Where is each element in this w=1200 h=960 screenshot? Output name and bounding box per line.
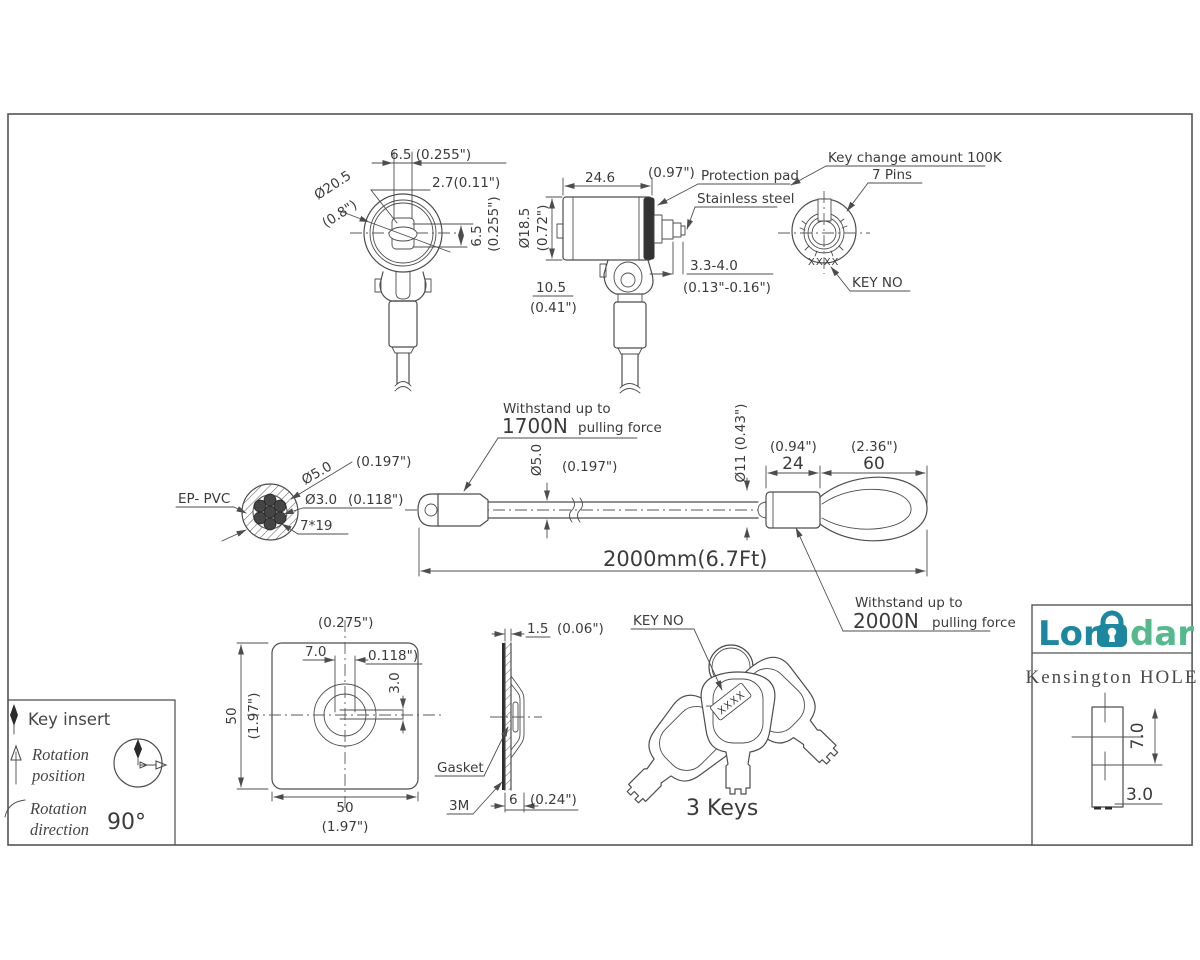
protection-pad-part bbox=[644, 198, 654, 259]
dim-front-65-top: 6.5 (0.255") bbox=[390, 147, 471, 163]
dim-plate-0118: 0.118") bbox=[368, 648, 418, 664]
dim-plate-left-50: 50 bbox=[224, 707, 240, 724]
dim-side-334: 3.3-4.0 bbox=[690, 258, 738, 274]
dim-side-105: 10.5 bbox=[536, 280, 566, 296]
dim-cable-dia50: Ø5.0 bbox=[529, 444, 545, 476]
dim-2000mm: 2000mm(6.7Ft) bbox=[603, 547, 767, 571]
dim-front-65-right-in: (0.255") bbox=[486, 196, 502, 251]
label-7x19: 7*19 bbox=[300, 518, 333, 534]
dim-cross-dia30-in: (0.118") bbox=[348, 492, 403, 508]
dim-plate-70: 7.0 bbox=[305, 644, 326, 660]
note-2000-line2: pulling force bbox=[932, 615, 1016, 631]
dim-plate-bottom-50: 50 bbox=[336, 800, 353, 816]
legend-direction: direction bbox=[30, 820, 89, 839]
label-gasket: Gasket bbox=[437, 760, 484, 776]
legend-rotation-1: Rotation bbox=[31, 745, 89, 764]
label-key-no-keys: KEY NO bbox=[633, 613, 684, 629]
drawing-canvas: 6.5 (0.255") 2.7(0.11") Ø20.5 (0.8") 6.5… bbox=[0, 0, 1200, 960]
legend-key-insert: Key insert bbox=[28, 710, 111, 729]
dim-60-in: (2.36") bbox=[851, 439, 898, 455]
technical-drawing-sheet: 6.5 (0.255") 2.7(0.11") Ø20.5 (0.8") 6.5… bbox=[0, 0, 1200, 960]
dim-60: 60 bbox=[863, 454, 885, 474]
dim-plate-30: 3.0 bbox=[387, 672, 403, 693]
dim-front-65-right: 6.5 bbox=[469, 225, 485, 246]
legend-position: position bbox=[31, 766, 85, 785]
dim-side-dia185-in: (0.72") bbox=[535, 205, 551, 252]
dim-hole-30: 3.0 bbox=[1126, 785, 1153, 805]
dim-hole-70: 7.0 bbox=[1128, 722, 1148, 749]
dim-cable-dia50-in: (0.197") bbox=[562, 459, 617, 475]
dim-side-105-in: (0.41") bbox=[530, 300, 577, 316]
dim-side-246: 24.6 bbox=[585, 170, 615, 186]
label-protection-pad: Protection pad bbox=[701, 168, 799, 184]
key-face-code: XXXX bbox=[808, 257, 839, 268]
note-1700-line2: pulling force bbox=[578, 420, 662, 436]
dim-cross-dia50-in: (0.197") bbox=[356, 454, 411, 470]
dim-plate-left-in: (1.97") bbox=[246, 693, 262, 740]
label-key-no-face: KEY NO bbox=[852, 275, 903, 291]
logo-text-lor: Lor bbox=[1038, 614, 1100, 654]
dim-front-27: 2.7(0.11") bbox=[432, 175, 500, 191]
legend-rotation-2: Rotation bbox=[29, 799, 87, 818]
label-ep-pvc: EP- PVC bbox=[178, 491, 230, 507]
label-stainless-steel: Stainless steel bbox=[697, 191, 795, 207]
note-1700-value: 1700N bbox=[502, 414, 568, 438]
dim-plate-bottom-in: (1.97") bbox=[322, 819, 369, 835]
label-key-change: Key change amount 100K bbox=[828, 150, 1003, 166]
dim-gasket-15-in: (0.06") bbox=[557, 621, 604, 637]
dim-gasket-15: 1.5 bbox=[527, 621, 548, 637]
dim-24: 24 bbox=[782, 454, 804, 474]
dim-cross-dia30: Ø3.0 bbox=[305, 492, 337, 508]
brand-box: Lor dar Kensington HOLE 7.0 3 bbox=[1025, 605, 1198, 845]
dim-side-334-in: (0.13"-0.16") bbox=[683, 280, 771, 296]
legend-angle: 90° bbox=[107, 810, 146, 835]
label-7-pins: 7 Pins bbox=[872, 167, 912, 183]
dim-24-in: (0.94") bbox=[770, 439, 817, 455]
dim-side-246-in: (0.97") bbox=[648, 165, 695, 181]
dim-gasket-6: 6 bbox=[509, 792, 518, 808]
label-kensington-hole: Kensington HOLE bbox=[1025, 667, 1198, 688]
logo-text-dar: dar bbox=[1130, 614, 1194, 654]
sheet-border bbox=[8, 114, 1192, 845]
dim-cable-dia11: Ø11 (0.43") bbox=[733, 404, 749, 483]
label-3-keys: 3 Keys bbox=[686, 796, 758, 821]
label-3m: 3M bbox=[449, 798, 469, 814]
dim-plate-top-in: (0.275") bbox=[318, 615, 373, 631]
note-2000-value: 2000N bbox=[853, 609, 919, 633]
dim-side-dia185: Ø18.5 bbox=[517, 208, 533, 249]
dim-gasket-6-in: (0.24") bbox=[530, 792, 577, 808]
